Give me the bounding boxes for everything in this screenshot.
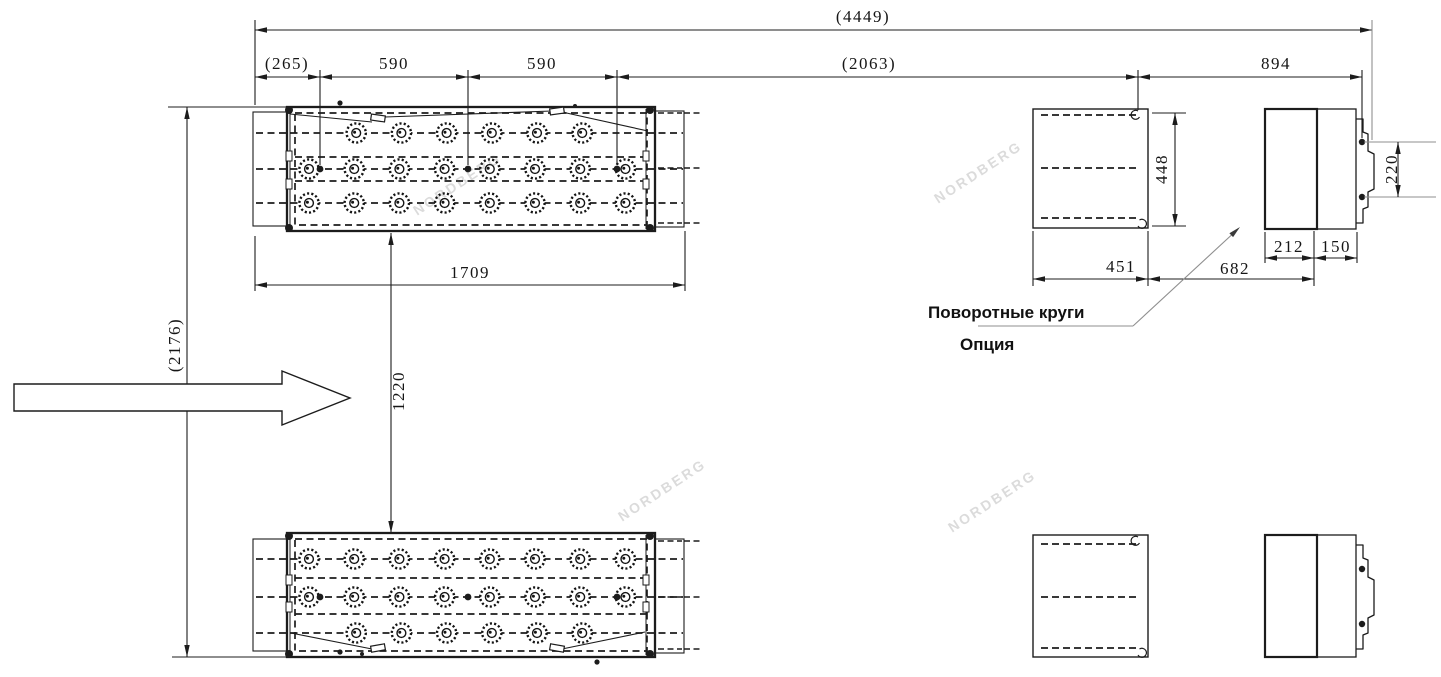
- dim-pitch-b: 590: [527, 54, 557, 74]
- drawing-linework: [0, 0, 1441, 677]
- label-option: Опция: [960, 335, 1014, 355]
- dim-turntable-offset: 682: [1220, 259, 1250, 279]
- dim-overall-width: (2176): [165, 318, 185, 372]
- dim-track-gap: 1220: [389, 371, 409, 411]
- dim-turntable-tab: 150: [1321, 237, 1351, 257]
- dim-left-offset: (265): [265, 54, 309, 74]
- technical-drawing: (4449) (265) 590 590 (2063) 894 1709 (21…: [0, 0, 1441, 677]
- dim-turntable-width: 212: [1274, 237, 1304, 257]
- label-turntables: Поворотные круги: [928, 303, 1085, 323]
- dim-mid-span: (2063): [842, 54, 896, 74]
- dim-bracket-pitch: 220: [1382, 154, 1402, 184]
- dim-pitch-a: 590: [379, 54, 409, 74]
- dim-total-length: (4449): [836, 7, 890, 27]
- dim-side-height: 448: [1152, 154, 1172, 184]
- dim-right-span: 894: [1261, 54, 1291, 74]
- dim-platform-length: 1709: [450, 263, 490, 283]
- dim-side-length: 451: [1106, 257, 1136, 277]
